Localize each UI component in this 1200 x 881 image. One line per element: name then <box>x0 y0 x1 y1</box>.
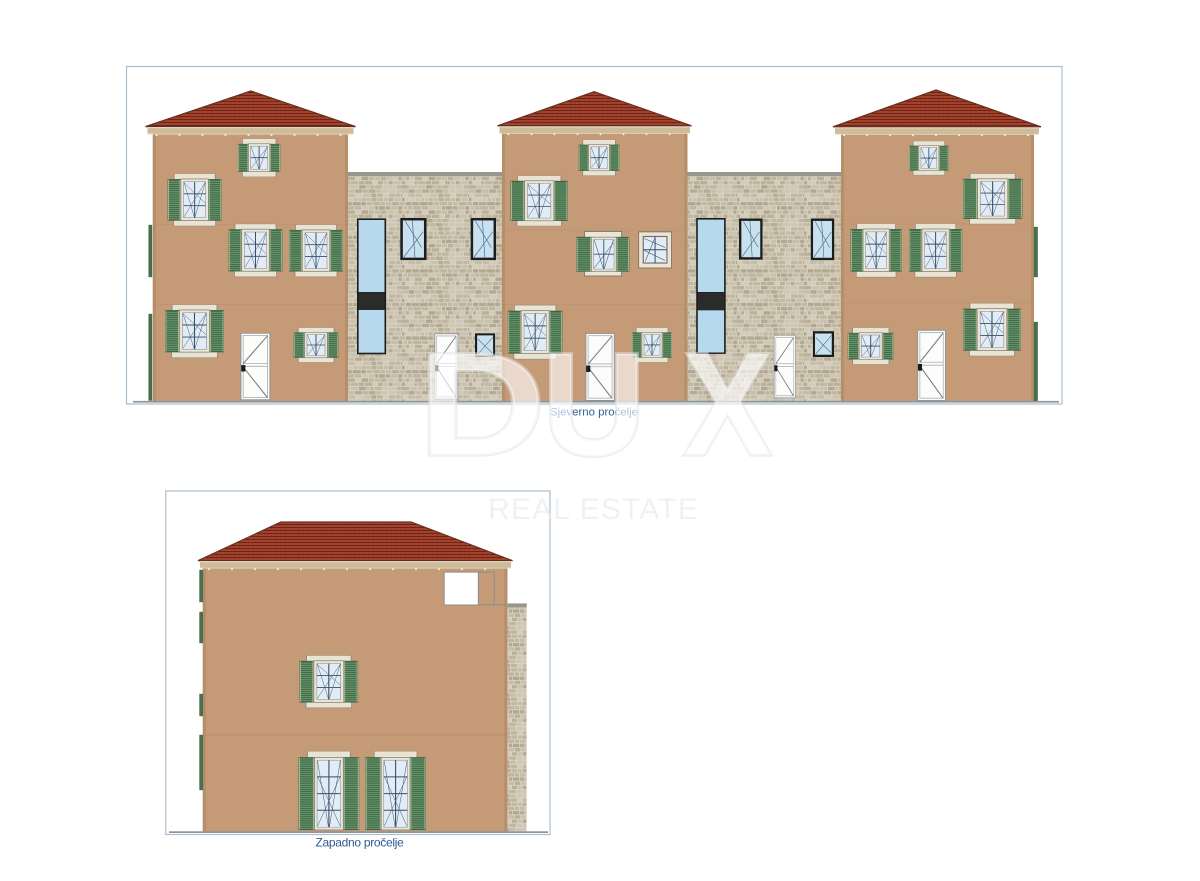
svg-text:REAL ESTATE: REAL ESTATE <box>488 493 699 526</box>
svg-text:D: D <box>418 323 546 487</box>
svg-text:U: U <box>542 323 646 487</box>
svg-text:X: X <box>683 323 772 487</box>
svg-text:Zapadno pročelje: Zapadno pročelje <box>316 836 405 850</box>
